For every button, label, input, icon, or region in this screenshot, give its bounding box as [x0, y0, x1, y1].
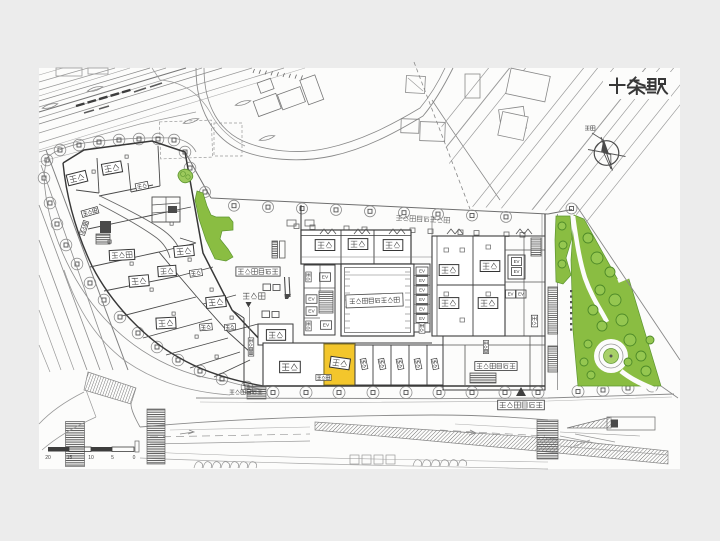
svg-text:EV: EV — [419, 288, 425, 293]
svg-text:EV: EV — [308, 309, 315, 315]
svg-text:10: 10 — [88, 455, 94, 461]
svg-text:EV: EV — [308, 297, 315, 303]
svg-text:EV: EV — [419, 316, 425, 321]
svg-text:EV: EV — [322, 275, 329, 281]
svg-text:EV: EV — [518, 292, 524, 297]
svg-text:EV: EV — [419, 269, 425, 274]
svg-text:EV: EV — [514, 269, 520, 274]
svg-text:20: 20 — [45, 455, 51, 461]
svg-text:EV: EV — [508, 292, 514, 297]
svg-text:5: 5 — [111, 455, 114, 461]
svg-text:0: 0 — [133, 455, 136, 461]
svg-text:EV: EV — [419, 278, 425, 283]
svg-text:EV: EV — [514, 259, 520, 264]
svg-text:EV: EV — [419, 297, 425, 302]
svg-text:EV: EV — [419, 307, 425, 312]
svg-text:EV: EV — [323, 323, 330, 329]
svg-text:15: 15 — [67, 455, 73, 461]
